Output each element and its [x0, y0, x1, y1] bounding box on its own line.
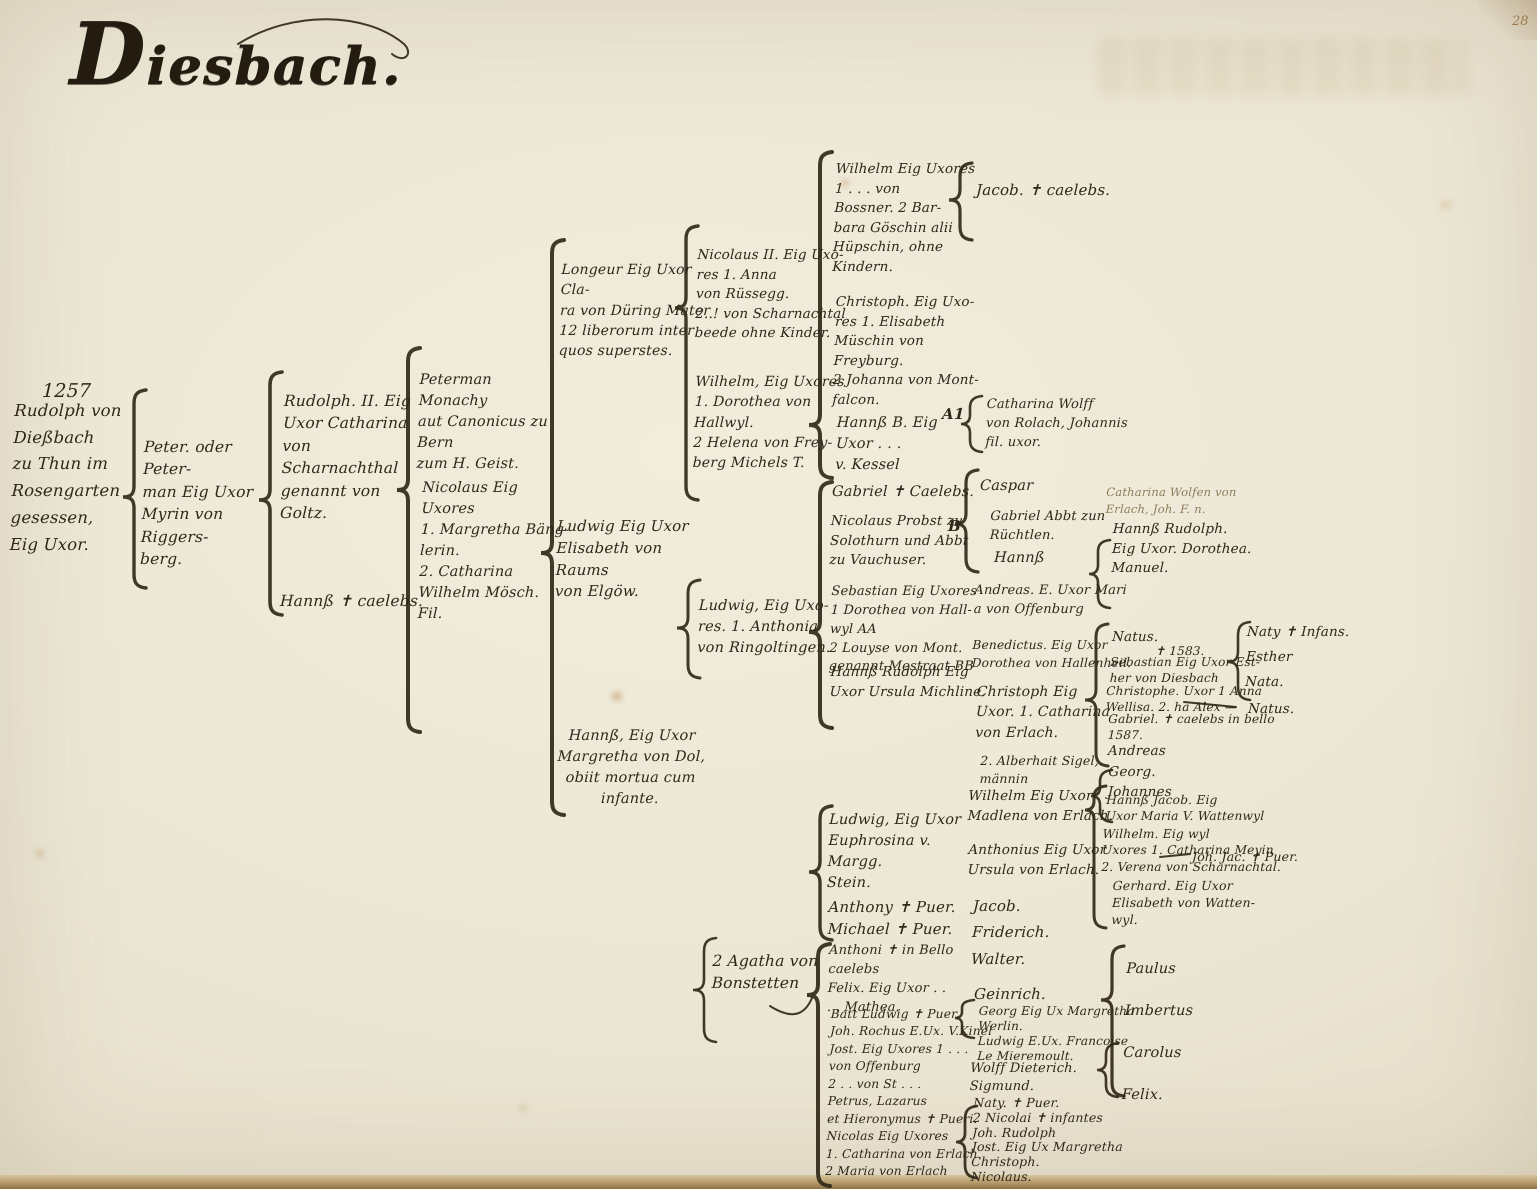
entry-note-catharina-wolfen: Catharina Wolfen von Erlach, Joh. F. n. [1105, 484, 1268, 517]
entry-gen4-nicolaus: Nicolaus Eig Uxores 1. Margretha Bäng- l… [417, 478, 572, 625]
entry-gen7-ludwig: Ludwig, Eig Uxor Euphrosina v. Margg. St… [827, 810, 988, 894]
entry-gen5-ludwig: Ludwig Eig Uxor Elisabeth von Raums von … [554, 516, 709, 603]
entry-gen5-hanns: Hannß, Eig Uxor Margretha von Dol, obiit… [551, 726, 712, 810]
entry-gen8-caspar: Caspar [980, 476, 1034, 497]
entry-gen3-hanns: Hannß ✝ caelebs. [280, 590, 441, 612]
connector-line [770, 998, 812, 1014]
entry-gen9-gerhard: Gerhard. Eig Uxor Elisabeth von Watten- … [1111, 878, 1275, 929]
entry-gen4-peterman: Peterman Monachy aut Canonicus zu Bern z… [416, 370, 565, 475]
family-tree-braces [0, 0, 1537, 1189]
marker-b: B [948, 516, 962, 538]
entry-gen8-catharina-wolff: Catharina Wolff von Rolach, Johannis fil… [985, 396, 1129, 453]
entry-gen8-andreas: Andreas. E. Uxor Mari a von Offenburg [973, 582, 1144, 620]
entry-gen9-wolff-sigmund: Wolff Dieterich. Sigmund. [969, 1060, 1112, 1095]
entry-gen8-geinrich: Geinrich. [974, 984, 1047, 1006]
page-number: 28 [1512, 14, 1529, 29]
entry-gen10-natus: Natus. [1248, 700, 1295, 720]
entry-gen6-wilhelm: Wilhelm, Eig Uxores 1. Dorothea von Hall… [692, 372, 854, 473]
entry-gen9-hanns-rudolph-manuel: Hannß Rudolph. Eig Uxor. Dorothea. Manue… [1111, 520, 1261, 579]
entry-gen8-jacob-caelebs: Jacob. ✝ caelebs. [976, 180, 1122, 202]
family-name-title: Diesbach. [69, 16, 403, 97]
entry-gen7-christoph: Christoph. Eig Uxo- res 1. Elisabeth Müs… [832, 293, 990, 410]
entry-gen9-hanns-jacob: Hannß Jacob. Eig Uxor Maria V. Wattenwyl [1105, 792, 1284, 825]
entry-gen6-nicolaus2: Nicolaus II. Eig Uxo- res 1. Anna von Rü… [694, 246, 849, 344]
entry-gen1-rudolph-root: Rudolph von Dießbach zu Thun im Rosengar… [9, 398, 135, 558]
entry-gen7-gabriel: Gabriel ✝ Caelebs. [832, 482, 993, 503]
entry-gen10-naty-infans-group: Naty ✝ Infans. Esther Nata. [1245, 620, 1388, 695]
entry-gen9-andreas: Andreas [1108, 742, 1167, 762]
entry-gen2-peter: Peter. oder Peter- man Eig Uxor Myrin vo… [140, 436, 275, 571]
entry-gen6-ludwig: Ludwig, Eig Uxo- res. 1. Anthonia von Ri… [697, 596, 851, 659]
entry-gen9-joh-jac-puer: Joh. Jac. ✝ Puer. [1192, 848, 1325, 866]
entry-gen9-paulus-group: Paulus Imbertus Carolus Felix. [1121, 948, 1247, 1116]
entry-gen7-anthony-michael: Anthony ✝ Puer. Michael ✝ Puer. [827, 897, 987, 941]
entry-gen3-rudolph2: Rudolph. II. Eig Uxor Catharina von Scha… [280, 390, 425, 525]
marker-a1: A1 [942, 404, 965, 426]
entry-gen8-jacob-friderich-walter: Jacob. Friderich. Walter. [971, 893, 1094, 972]
entry-gen7-wilhelm: Wilhelm Eig Uxores 1 . . . von Bossner. … [832, 160, 988, 277]
entry-gen9-natus: Natus. [1112, 628, 1159, 648]
entry-gen8-hanns: Hannß [994, 548, 1045, 569]
manuscript-page: Diesbach. 28 1257 Rudolph von Dießbach z… [0, 0, 1537, 1189]
entry-gen7-nicolaus-probst: Nicolaus Probst zu Solothurn und Abbt zu… [829, 512, 985, 571]
